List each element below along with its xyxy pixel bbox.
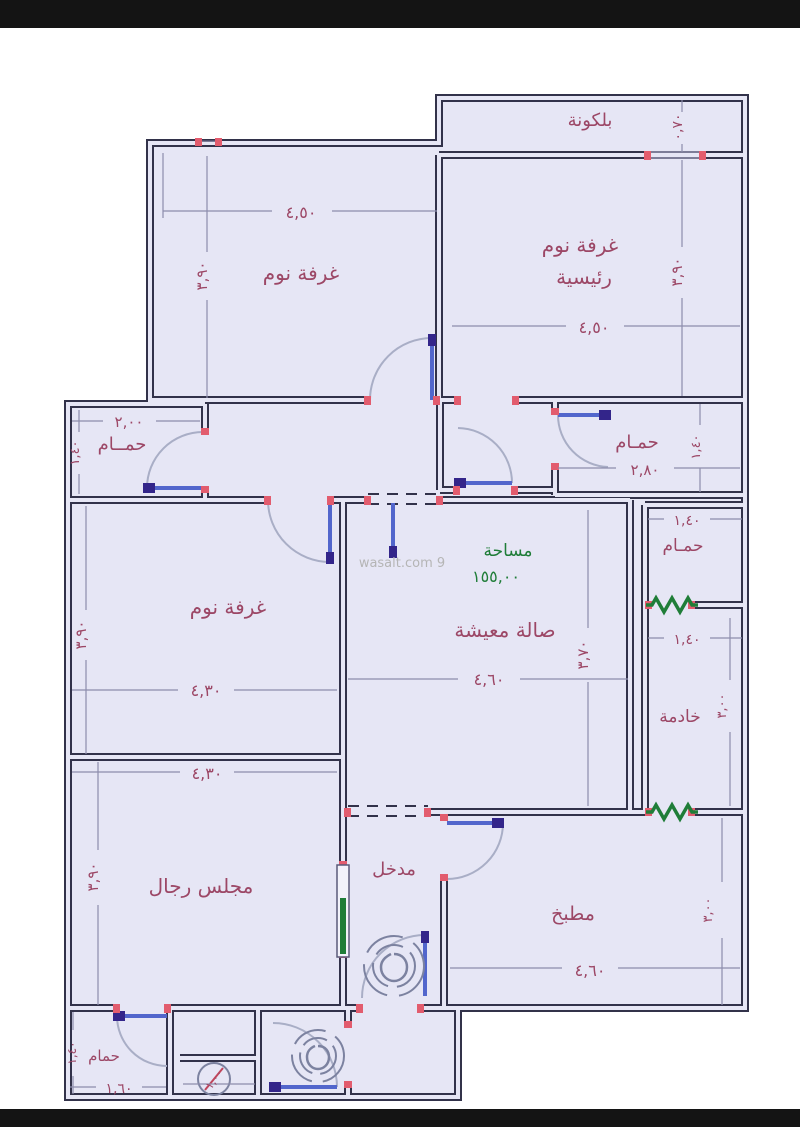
jamb xyxy=(453,486,460,495)
jamb xyxy=(113,1004,120,1013)
jamb xyxy=(436,496,443,505)
bedroom-left-width-dim: ٤,٣٠ xyxy=(191,681,222,700)
door-cap xyxy=(428,334,436,346)
majlis-width-dim: ٤,٣٠ xyxy=(192,764,223,783)
area-note-title: مساحة xyxy=(483,541,532,561)
living-width-dim: ٤,٦٠ xyxy=(474,670,505,689)
jamb xyxy=(344,1021,352,1028)
living-height-dim: ٣,٧٠ xyxy=(574,641,592,670)
jamb xyxy=(201,486,209,493)
area-note-value: ١٥٥,٠٠ xyxy=(472,567,520,586)
jamb xyxy=(551,408,559,415)
floor-plan-canvas: بلكونة غرفة نوم غرفة نوم رئيسية حمــام ح… xyxy=(0,0,800,1127)
jamb xyxy=(440,814,448,821)
living-label: صالة معيشة xyxy=(454,618,555,642)
jamb xyxy=(440,874,448,881)
jamb xyxy=(454,396,461,405)
jamb xyxy=(364,496,371,505)
bath-hall-label: حمـام xyxy=(615,432,658,453)
entrance-label: مدخل xyxy=(372,859,416,880)
main-door-green-leaf xyxy=(340,898,346,954)
door-cap xyxy=(492,818,504,828)
door-cap xyxy=(143,483,155,493)
jamb xyxy=(512,396,519,405)
bath-left-height-dim: ١,٤٠ xyxy=(68,440,83,465)
bedroom-left-height-dim: ٣,٩٠ xyxy=(72,621,90,650)
jamb xyxy=(215,138,222,146)
bedroom-top-height-dim: ٣,٩٠ xyxy=(193,262,211,291)
balcony-depth-dim: ٠,٧٠ xyxy=(670,113,686,140)
maid-label: خادمة xyxy=(659,707,700,727)
door-cap xyxy=(599,410,611,420)
bedroom-top-width-dim: ٤,٥٠ xyxy=(286,203,317,222)
master-bedroom-label-line2: رئيسية xyxy=(556,265,612,289)
jamb xyxy=(195,138,202,146)
maid-width-dim: ١,٤٠ xyxy=(673,632,700,648)
letterbox-bottom xyxy=(0,1109,800,1127)
jamb xyxy=(164,1004,171,1013)
bath-left-width-dim: ٢,٠٠ xyxy=(115,413,144,431)
kitchen-width-dim: ٤,٦٠ xyxy=(575,961,606,980)
bath-hall-width-dim: ٢,٨٠ xyxy=(631,461,660,479)
door-cap xyxy=(326,552,334,564)
main-door-panel xyxy=(337,865,349,957)
jamb xyxy=(511,486,518,495)
bath-bottom-height-dim: ١,٤٠ xyxy=(65,1041,79,1064)
jamb xyxy=(344,808,351,817)
bath-hall-height-dim: ١,٤٠ xyxy=(689,434,704,459)
jamb xyxy=(433,396,440,405)
jamb xyxy=(356,1004,363,1013)
majlis-label: مجلس رجال xyxy=(149,874,254,898)
bedroom-top-label: غرفة نوم xyxy=(263,261,339,285)
maid-height-dim: ٣,٠٠ xyxy=(715,693,730,718)
bedroom-left-label: غرفة نوم xyxy=(190,595,266,619)
jamb xyxy=(327,496,334,505)
letterbox-top xyxy=(0,0,800,28)
balcony-label: بلكونة xyxy=(568,110,613,131)
majlis-height-dim: ٣,٩٠ xyxy=(84,863,102,892)
door-cap xyxy=(269,1082,281,1092)
kitchen-label: مطبخ xyxy=(551,903,595,925)
jamb xyxy=(424,808,431,817)
bath-left-label: حمــام xyxy=(98,434,147,455)
jamb xyxy=(344,1081,352,1088)
bath-right-width-dim: ١,٤٠ xyxy=(673,513,700,529)
kitchen-height-dim: ٣,٠٠ xyxy=(701,897,716,922)
jamb xyxy=(699,151,706,160)
jamb xyxy=(644,151,651,160)
jamb xyxy=(364,396,371,405)
jamb xyxy=(264,496,271,505)
jamb xyxy=(201,428,209,435)
watermark-text: wasalt.com 9 xyxy=(359,556,445,571)
master-width-dim: ٤,٥٠ xyxy=(579,318,610,337)
master-bedroom-label-line1: غرفة نوم xyxy=(542,233,618,257)
bath-bottom-label: حمام xyxy=(88,1047,120,1065)
bath-bottom-width-dim: ١,٦٠ xyxy=(105,1081,132,1097)
jamb xyxy=(551,463,559,470)
door-cap xyxy=(421,931,429,943)
master-height-dim: ٣,٩٠ xyxy=(668,258,686,287)
bath-right-label: حمـام xyxy=(662,536,703,556)
jamb xyxy=(417,1004,424,1013)
